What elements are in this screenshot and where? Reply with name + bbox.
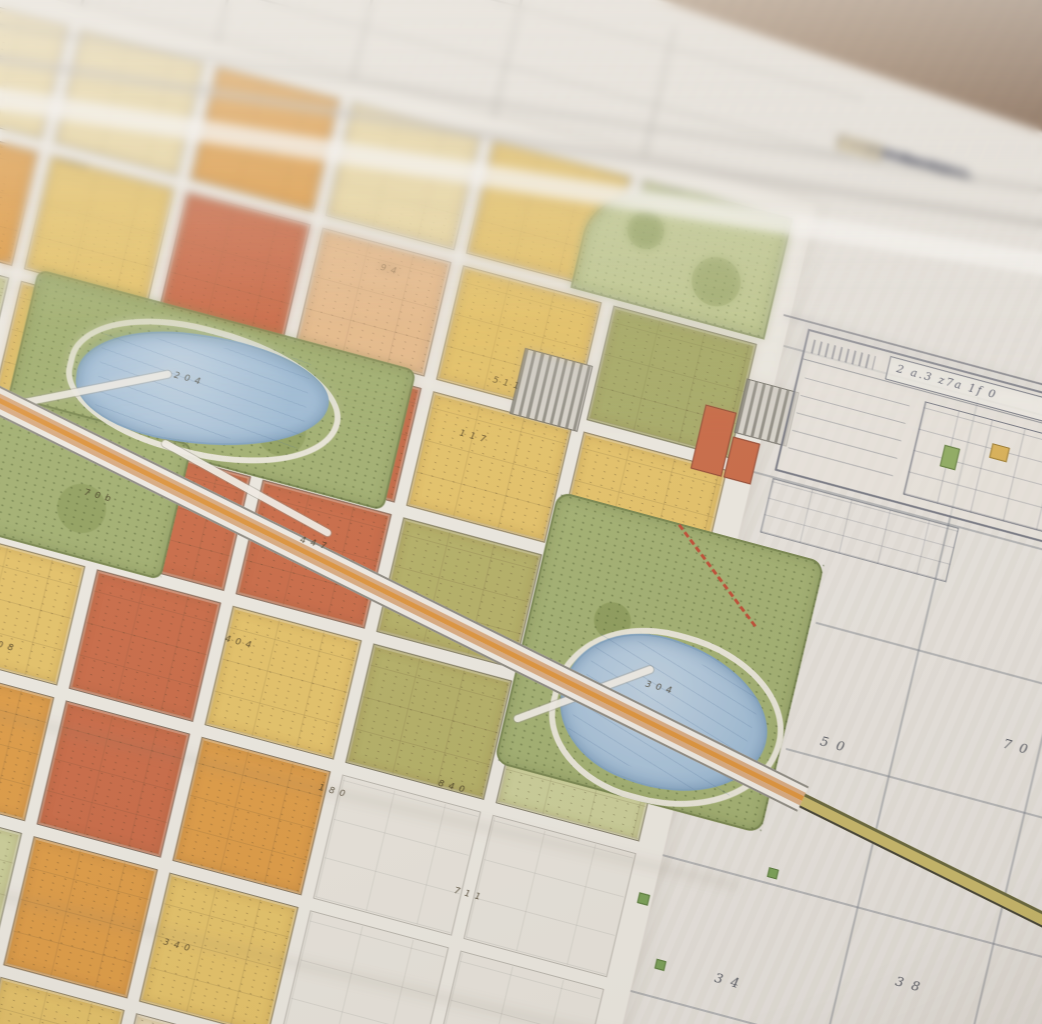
zoning-map-photo: a 8 01 2 a9 48 0 b2 0 41 1 74 4 78 0 85 … [0,0,1042,1024]
vignette-overlay [0,0,1042,1024]
